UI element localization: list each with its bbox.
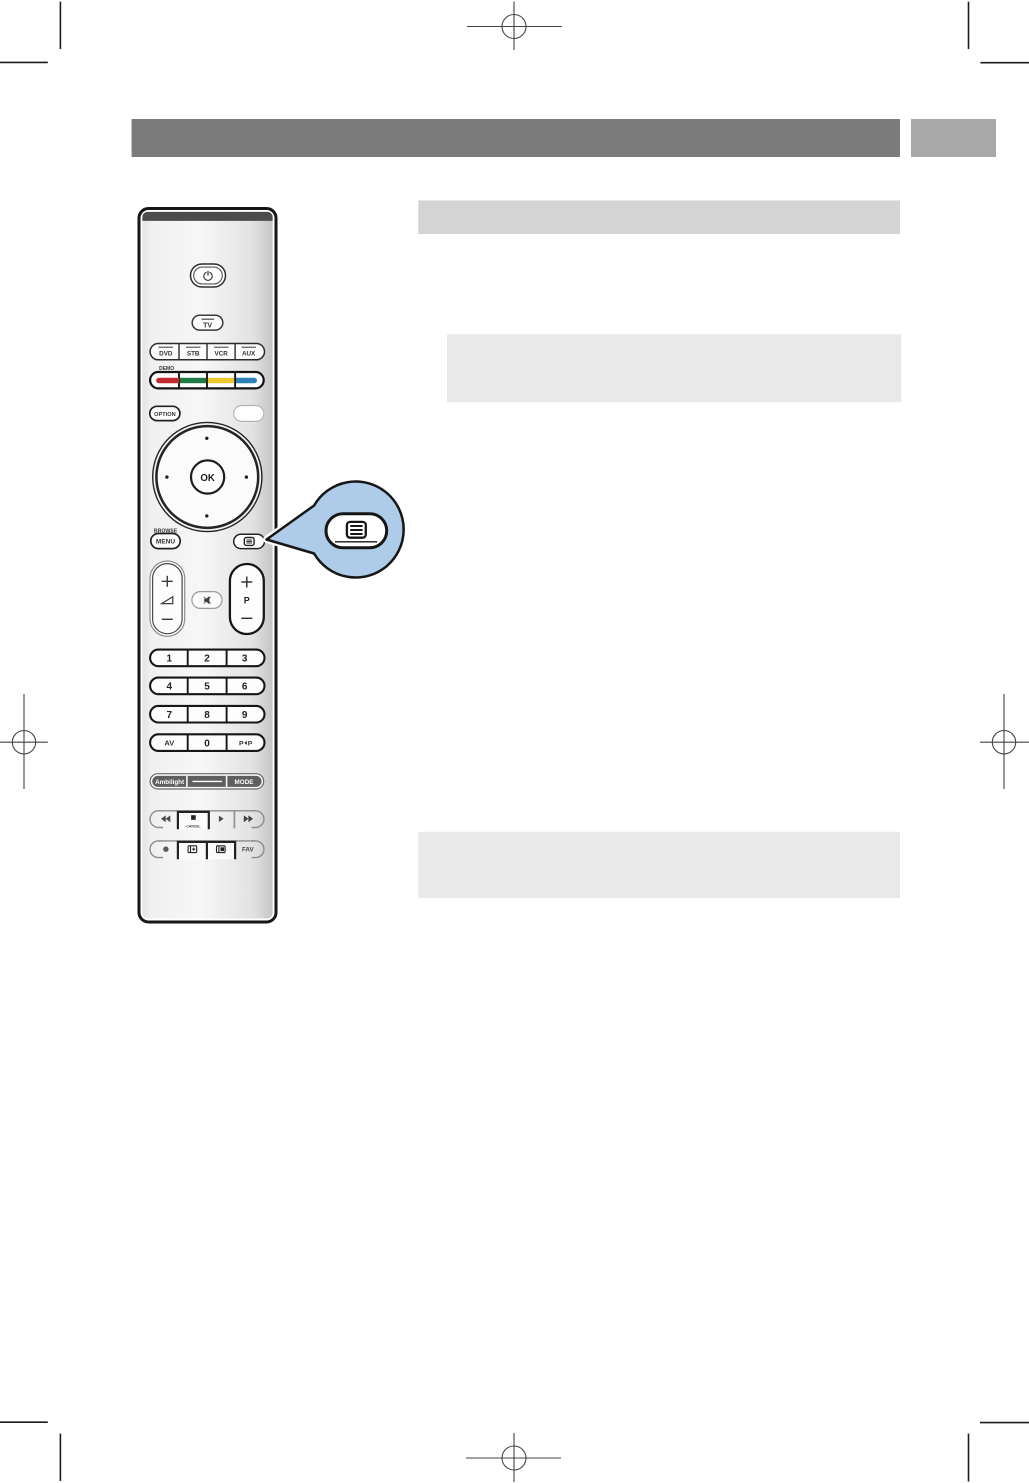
svg-text:3: 3 <box>242 654 248 665</box>
svg-text:P: P <box>248 740 253 747</box>
svg-text:8: 8 <box>204 710 210 721</box>
svg-text:VCR: VCR <box>215 350 229 357</box>
svg-text:2: 2 <box>204 654 210 665</box>
svg-text:6: 6 <box>242 682 248 693</box>
svg-text:FAV: FAV <box>242 847 254 854</box>
svg-text:4: 4 <box>167 682 173 693</box>
svg-text:OPTION: OPTION <box>154 412 175 418</box>
svg-text:STB: STB <box>187 350 200 357</box>
svg-text:1: 1 <box>167 654 173 665</box>
svg-text:P: P <box>244 595 250 605</box>
svg-text:P: P <box>239 740 244 747</box>
svg-text:AUX: AUX <box>242 350 256 357</box>
svg-text:DVD: DVD <box>159 350 173 357</box>
svg-text:AV: AV <box>164 739 174 748</box>
svg-text:7: 7 <box>167 710 173 721</box>
svg-text:CANCEL: CANCEL <box>186 824 200 828</box>
svg-text:MODE: MODE <box>235 779 254 786</box>
svg-text:OK: OK <box>200 473 215 484</box>
svg-text:9: 9 <box>242 710 248 721</box>
svg-text:MENU: MENU <box>156 539 175 546</box>
svg-text:5: 5 <box>204 682 210 693</box>
svg-text:0: 0 <box>204 738 210 749</box>
svg-text:TV: TV <box>203 323 212 330</box>
svg-text:Ambilight: Ambilight <box>155 779 185 786</box>
